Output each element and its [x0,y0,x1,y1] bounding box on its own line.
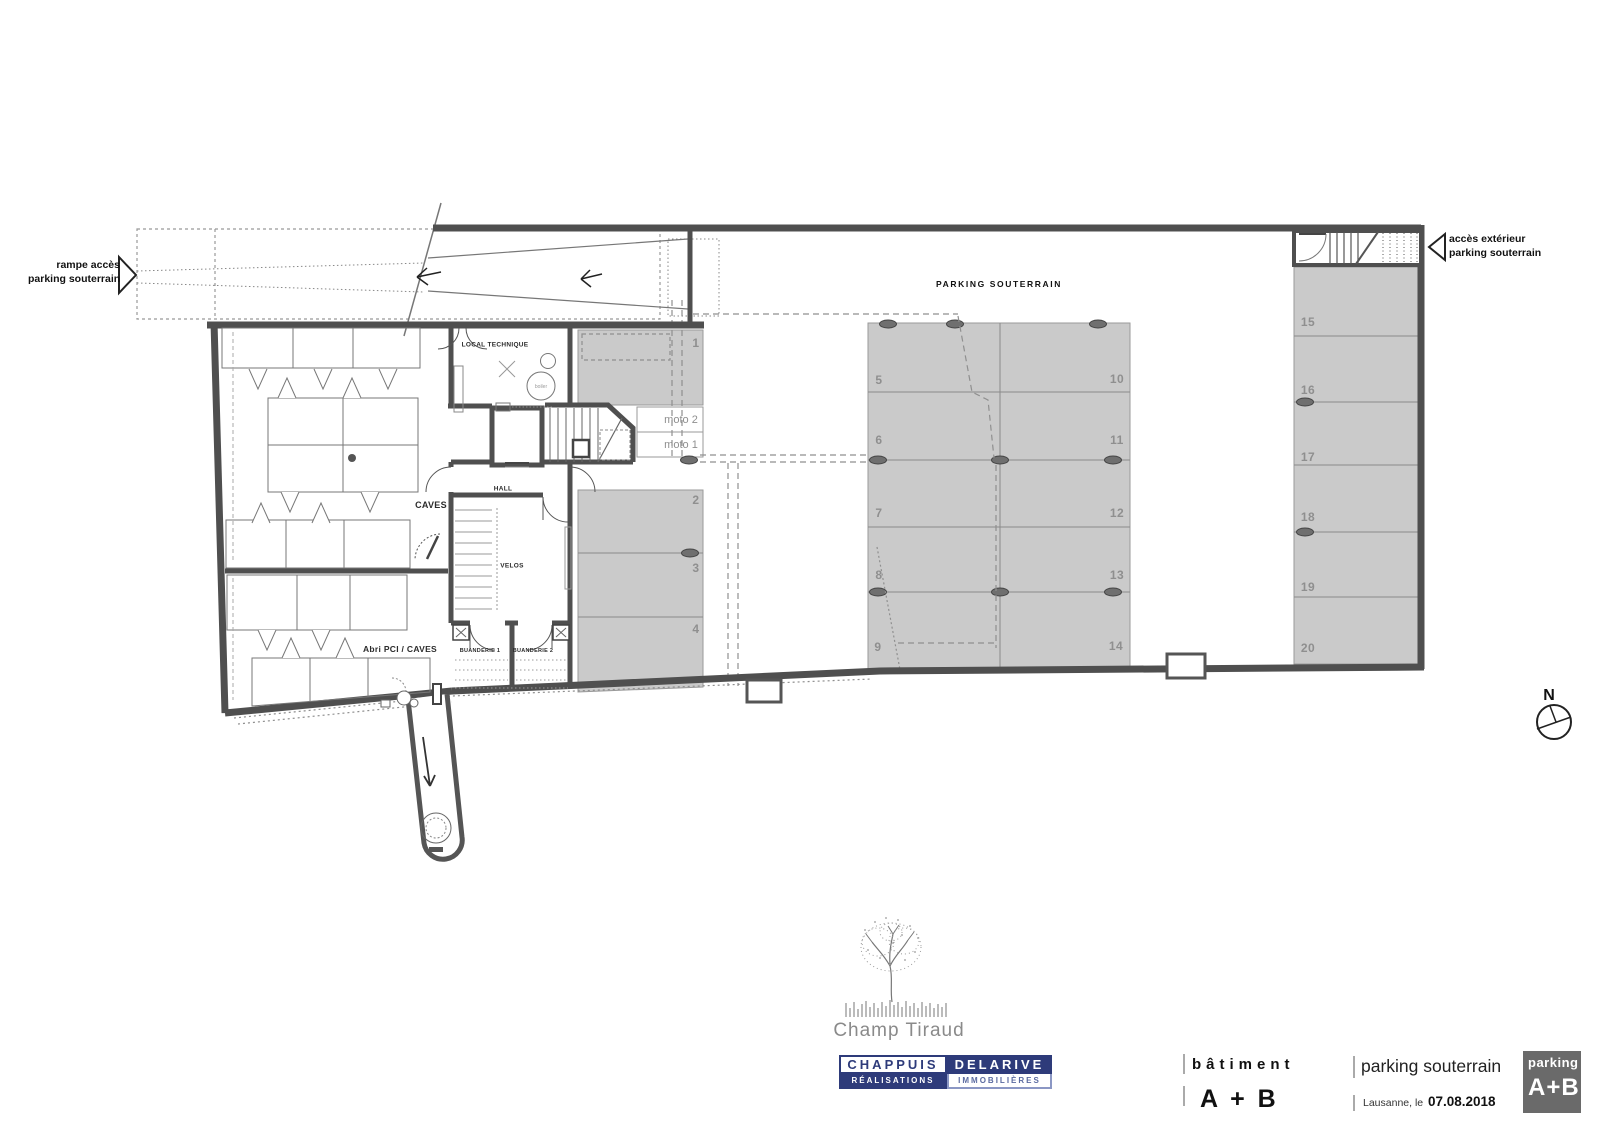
elevator-and-stairs [492,408,630,467]
spot-7: 7 [875,506,882,520]
spot-18: 18 [1301,510,1315,524]
ramp-annotation-line1: rampe accès [28,258,120,272]
spot-8: 8 [875,568,882,582]
spot-16: 16 [1301,383,1315,397]
project-name: Champ Tiraud [833,1020,964,1042]
floor-drain-icon [499,361,515,377]
brand-logo: CHAPPUIS DELARIVE RÉALISATIONS IMMOBILIÈ… [839,1055,1052,1089]
spot-5: 5 [875,373,882,387]
stamp-bottom: A+B [1528,1074,1576,1102]
annotation-arrows [119,234,1445,293]
tree-logo-icon [846,917,946,1017]
titleblock-divider [1183,1054,1185,1074]
hall-east-door-arc [570,467,595,492]
spot-20: 20 [1301,641,1315,655]
hall-west-door-arc [426,467,451,492]
bike-rack [455,510,492,609]
titleblock-divider [1183,1086,1185,1106]
exit-tunnel [381,678,462,859]
sheet-title: parking souterrain [1361,1056,1501,1077]
spot-3: 3 [692,561,699,575]
titleblock-divider [1353,1095,1355,1111]
floor-plan-page: PARKING SOUTERRAIN rampe accès parking s… [0,0,1600,1132]
spot-14: 14 [1109,639,1123,653]
walls [207,225,1424,713]
spot-6: 6 [875,433,882,447]
spot-4: 4 [692,622,699,636]
buanderie1-door-arc [470,625,495,650]
titleblock-divider [1353,1056,1355,1078]
spot-1: 1 [692,336,699,350]
north-label: N [1543,687,1555,705]
ramp-annotation: rampe accès parking souterrain [28,258,120,286]
room-boiler: boiler [535,384,547,390]
grass-strokes [846,1000,946,1017]
spot-moto2: moto 2 [664,414,698,426]
exterior-stair [1294,231,1421,265]
spot-17: 17 [1301,450,1315,464]
spot-15: 15 [1301,315,1315,329]
buanderie2-door-arc [527,625,552,650]
ramp-arrow-icon [119,257,136,293]
room-buanderie-2: BUANDERIE 2 [513,648,554,654]
date-value: 07.08.2018 [1428,1094,1496,1109]
building-value: A + B [1200,1085,1279,1114]
spot-19: 19 [1301,580,1315,594]
building-label: bâtiment [1192,1056,1295,1073]
spot-2: 2 [692,493,699,507]
spot-11: 11 [1110,433,1124,447]
stamp-top: parking [1528,1055,1576,1070]
access-ramp [137,203,719,336]
spot-13: 13 [1110,568,1124,582]
spot-9: 9 [874,640,881,654]
north-compass-icon [1537,705,1571,739]
floor-plan-drawing [0,0,1600,1132]
spot-moto1: moto 1 [664,439,698,451]
spot-10: 10 [1110,372,1124,386]
room-local-technique: LOCAL TECHNIQUE [462,342,529,349]
place-label: Lausanne, le [1363,1097,1423,1109]
exterior-access-line1: accès extérieur [1449,232,1541,246]
ramp-annotation-line2: parking souterrain [28,272,120,286]
spot-12: 12 [1110,506,1124,520]
parking-area-title: PARKING SOUTERRAIN [936,279,1062,289]
room-caves: CAVES [415,500,447,510]
room-abri-pci: Abri PCI / CAVES [363,644,437,654]
brand-chappuis: CHAPPUIS [839,1055,947,1074]
room-velos: VELOS [500,563,524,570]
brand-realisations: RÉALISATIONS [839,1074,947,1089]
exterior-access-line2: parking souterrain [1449,246,1541,260]
velos-door-arc [543,497,568,522]
brand-immobilieres: IMMOBILIÈRES [947,1074,1052,1089]
room-buanderie-1: BUANDERIE 1 [460,648,501,654]
cave-door-swings [249,369,397,658]
brand-delarive: DELARIVE [947,1055,1052,1074]
elevator [492,408,542,465]
parking-stall-fills [578,267,1418,692]
room-hall: HALL [494,486,513,493]
parking-stamp: parking A+B [1523,1051,1581,1113]
exterior-access-arrow-icon [1429,234,1445,260]
exterior-access-annotation: accès extérieur parking souterrain [1449,232,1541,260]
